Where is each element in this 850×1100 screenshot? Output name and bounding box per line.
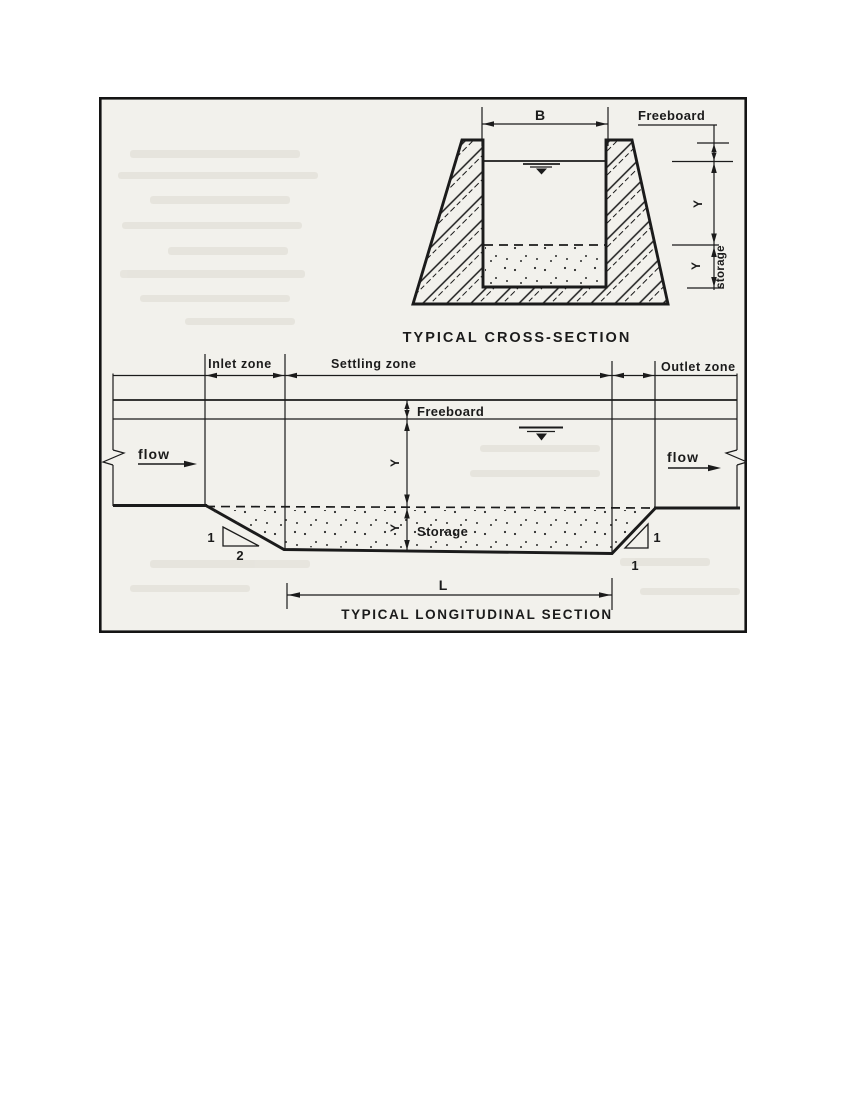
storage-rotated-label: storage [715,245,727,289]
cross-section-title: TYPICAL CROSS-SECTION [403,330,632,346]
settling-zone-label: Settling zone [331,357,417,371]
flow-right-label: flow [667,449,699,465]
freeboard-label-long: Freeboard [417,404,484,419]
flow-left-label: flow [138,446,170,462]
longitudinal-section-title: TYPICAL LONGITUDINAL SECTION [341,607,613,622]
sediment-basin-figure: B Freeboard Y [99,97,747,633]
length-dim-label: L [439,577,448,593]
storage-depth-label: Y [689,262,703,270]
outlet-slope-h-label: 1 [631,558,638,573]
freeboard-label: Freeboard [638,108,705,123]
water-depth-label-long: Y [388,459,402,467]
figure-canvas: B Freeboard Y [99,97,747,633]
width-dim-label: B [535,107,545,123]
storage-label-long: Storage [417,524,468,539]
inlet-zone-label: Inlet zone [208,357,272,371]
outlet-zone-label: Outlet zone [661,360,736,374]
inlet-slope-h-label: 2 [236,548,243,563]
storage-stipple [485,247,604,286]
storage-depth-label-long: Y [388,524,402,532]
outlet-slope-v-label: 1 [653,530,660,545]
scanned-document-page: B Freeboard Y [0,0,850,1100]
water-depth-label: Y [691,200,705,208]
inlet-slope-v-label: 1 [207,530,214,545]
